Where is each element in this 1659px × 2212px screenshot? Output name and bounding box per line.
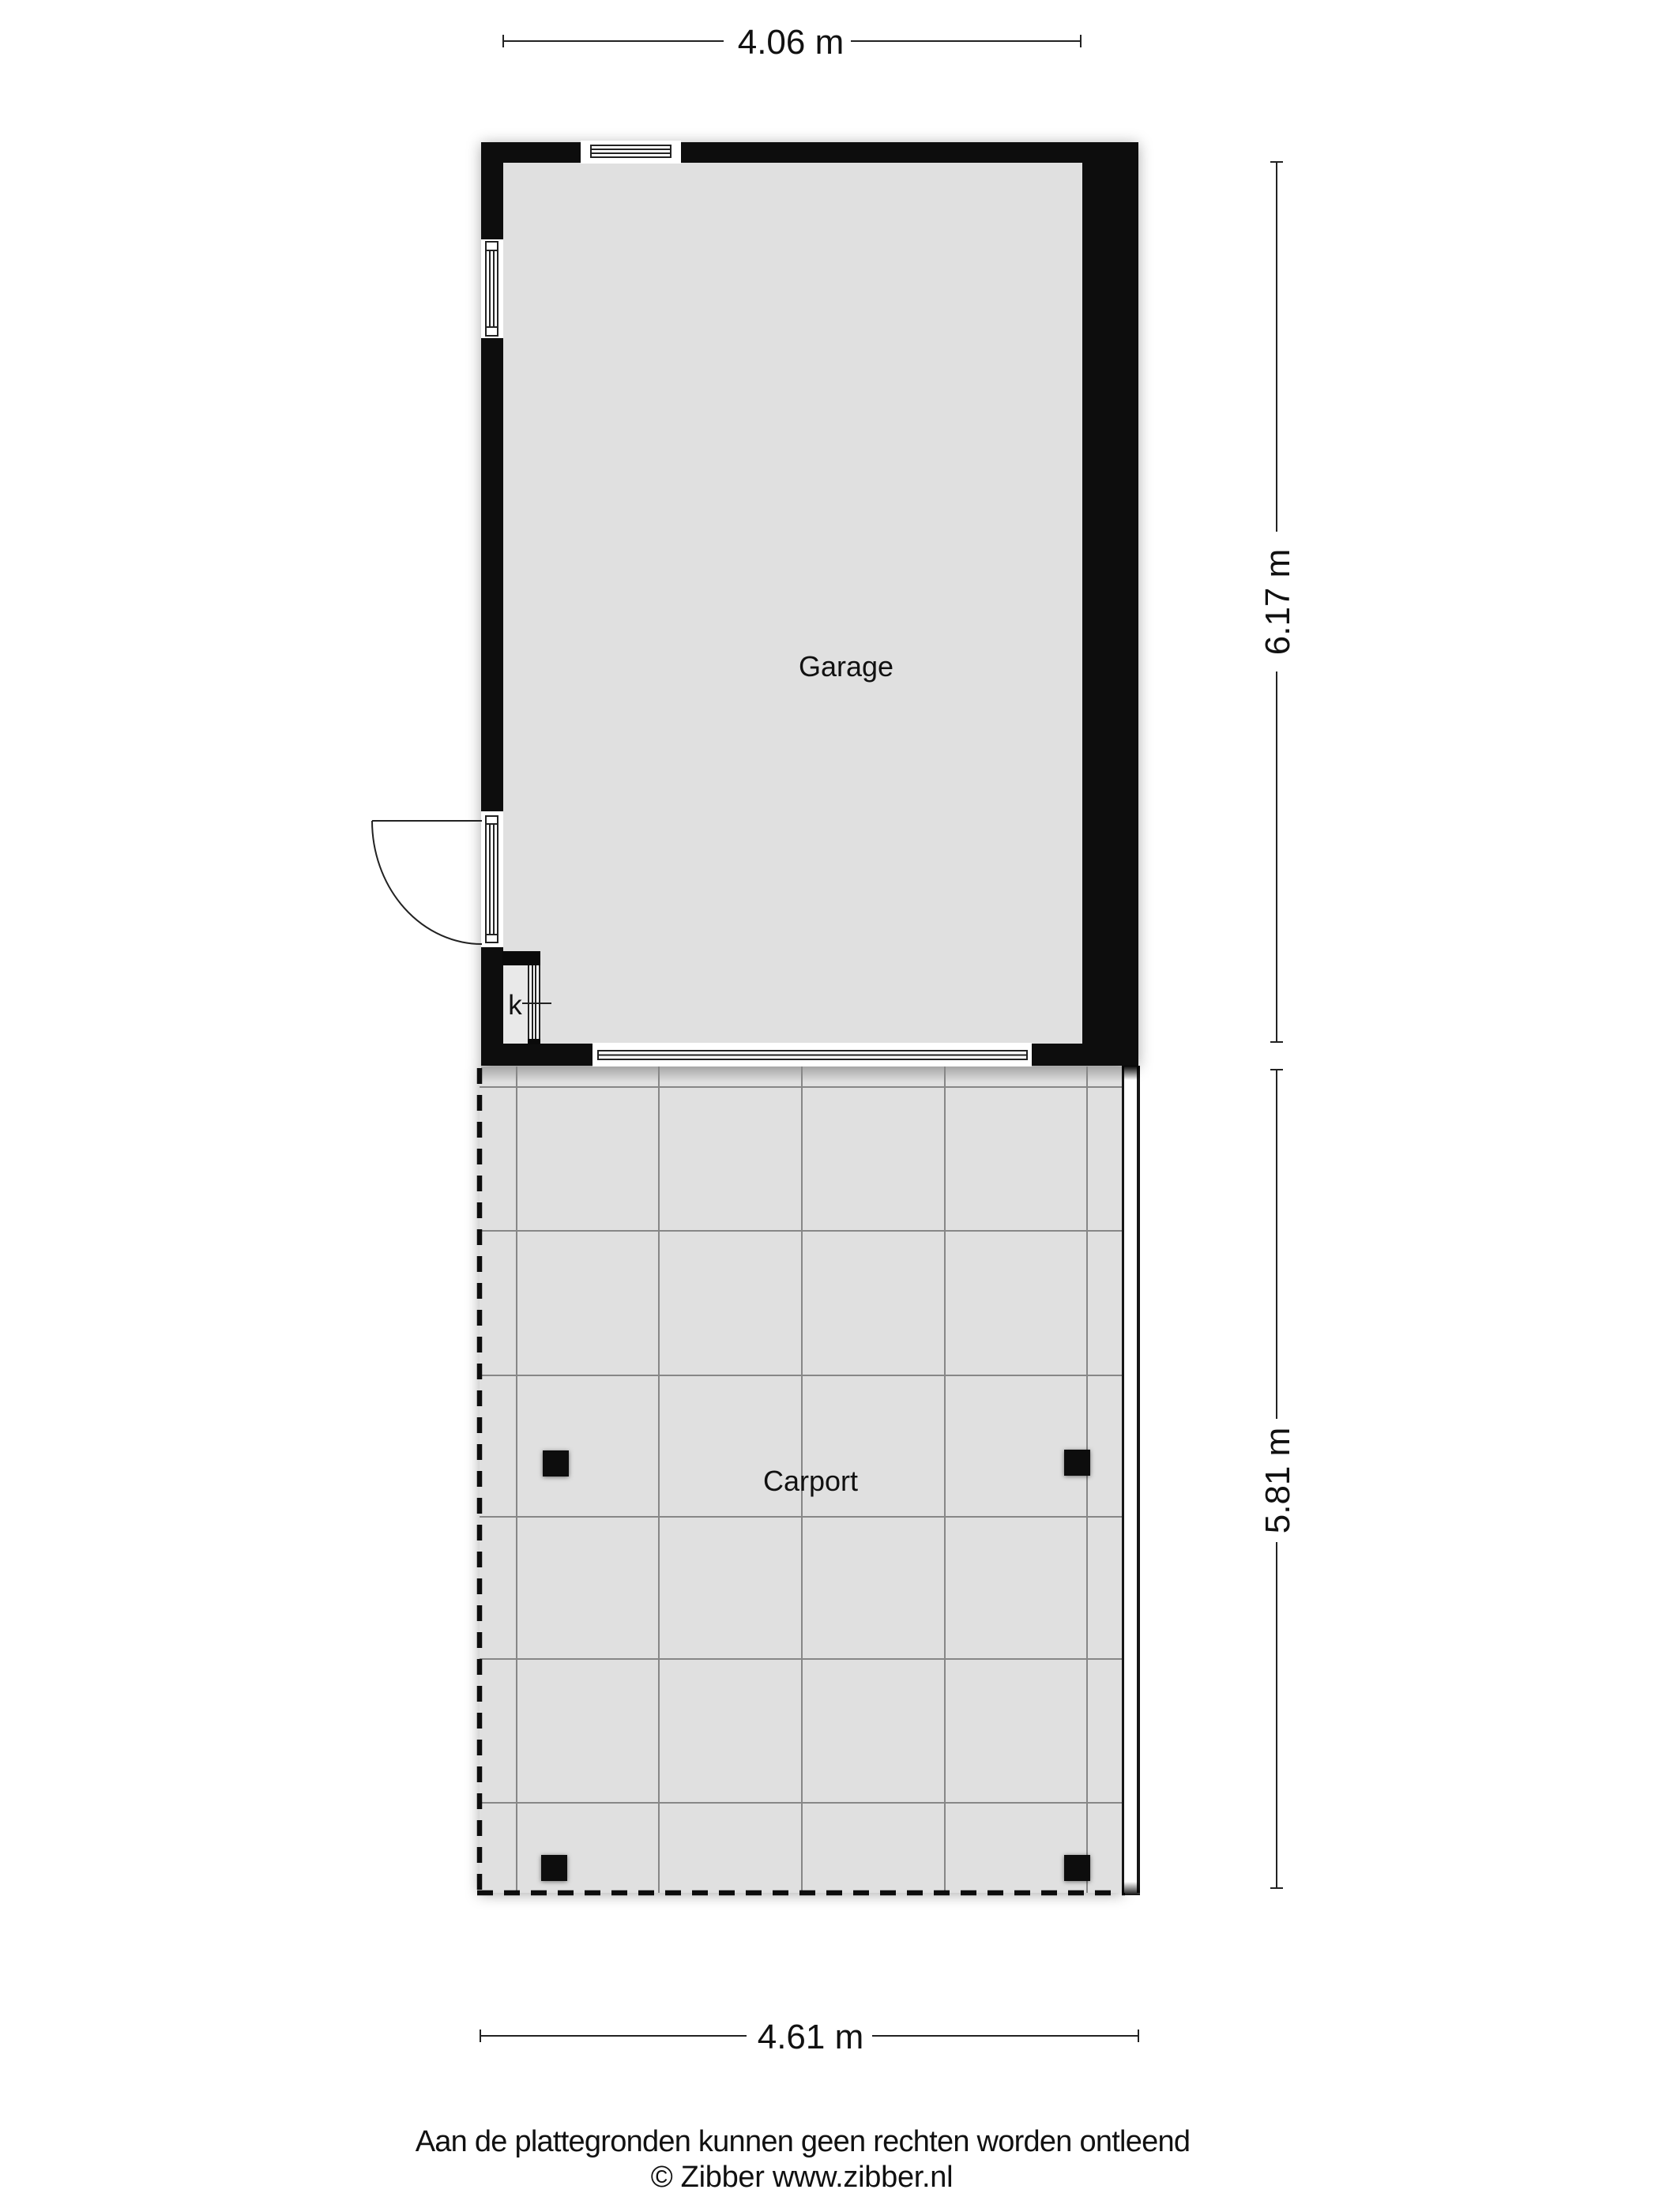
svg-text:5.81 m: 5.81 m xyxy=(1258,1428,1297,1534)
svg-text:4.61 m: 4.61 m xyxy=(758,2018,864,2056)
svg-text:6.17 m: 6.17 m xyxy=(1258,549,1297,656)
svg-text:Garage: Garage xyxy=(799,650,893,683)
svg-text:© Zibber www.zibber.nl: © Zibber www.zibber.nl xyxy=(651,2161,954,2194)
svg-text:4.06 m: 4.06 m xyxy=(738,23,845,62)
svg-text:Aan de plattegronden kunnen ge: Aan de plattegronden kunnen geen rechten… xyxy=(416,2125,1191,2158)
svg-text:k: k xyxy=(508,990,522,1021)
svg-text:Carport: Carport xyxy=(763,1465,858,1497)
